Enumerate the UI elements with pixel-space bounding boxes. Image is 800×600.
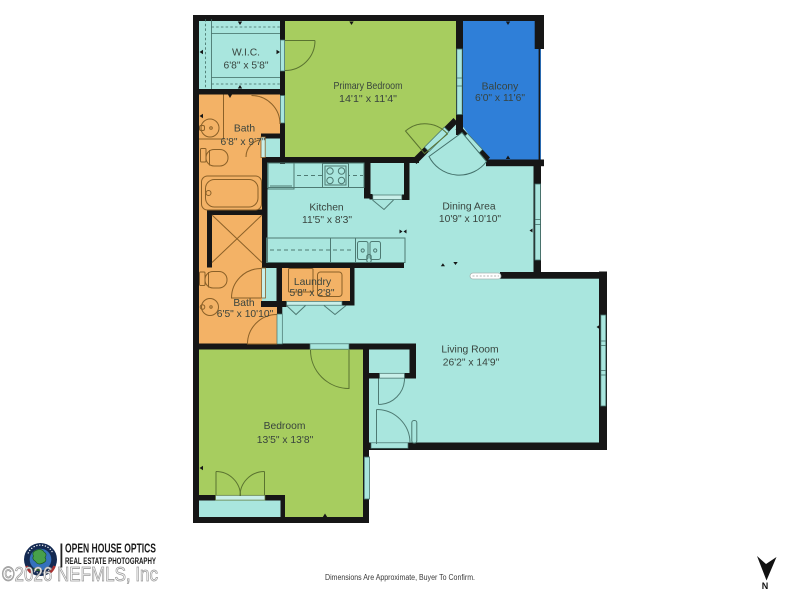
svg-text:Bath: Bath [233,298,254,309]
svg-text:Bath: Bath [234,124,255,135]
svg-text:Primary Bedroom: Primary Bedroom [334,81,403,92]
svg-text:Laundry: Laundry [294,277,332,288]
svg-text:6'8" x 5'8": 6'8" x 5'8" [223,61,268,72]
svg-text:Kitchen: Kitchen [309,203,344,214]
svg-text:Bedroom: Bedroom [264,421,306,432]
svg-text:6'5" x 10'10": 6'5" x 10'10" [217,309,274,320]
svg-text:11'5" x 8'3": 11'5" x 8'3" [302,215,352,226]
svg-text:6'8" x 9'7": 6'8" x 9'7" [220,137,265,148]
svg-text:Balcony: Balcony [482,82,519,93]
svg-text:Dining Area: Dining Area [442,202,496,213]
svg-text:Living Room: Living Room [441,345,498,356]
svg-text:14'1" x 11'4": 14'1" x 11'4" [339,94,397,105]
svg-text:©2026 NEFMLS, Inc: ©2026 NEFMLS, Inc [2,563,158,586]
svg-text:Dimensions Are Approximate, Bu: Dimensions Are Approximate, Buyer To Con… [325,573,475,582]
svg-text:OPEN HOUSE OPTICS: OPEN HOUSE OPTICS [65,542,156,556]
svg-text:N: N [762,581,769,591]
svg-text:6'0" x 11'6": 6'0" x 11'6" [475,93,525,104]
svg-text:26'2" x 14'9": 26'2" x 14'9" [443,358,500,369]
svg-text:W.I.C.: W.I.C. [232,48,260,59]
svg-text:13'5" x 13'8": 13'5" x 13'8" [257,435,314,446]
svg-text:5'8" x 2'8": 5'8" x 2'8" [289,288,334,299]
svg-text:10'9" x 10'10": 10'9" x 10'10" [439,214,502,225]
